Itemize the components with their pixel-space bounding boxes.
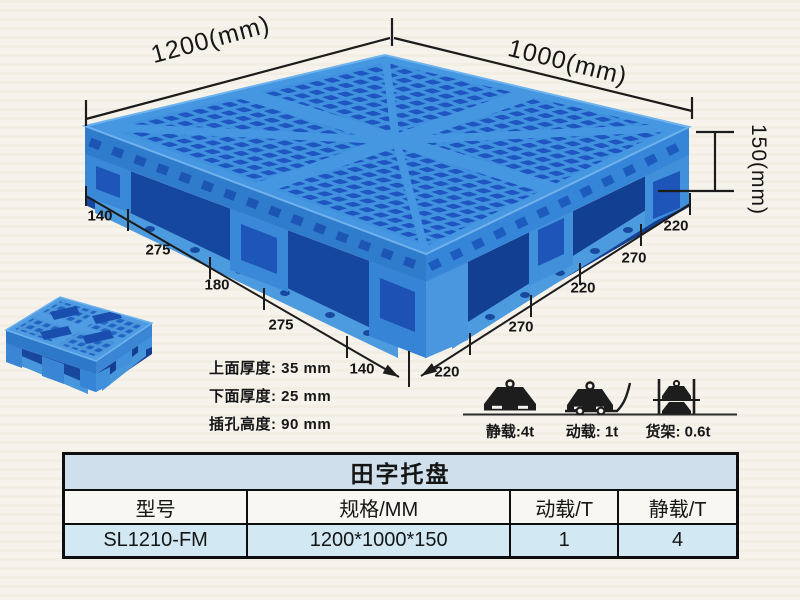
spec-table: 田字托盘 型号 规格/MM 动载/T 静载/T SL1210-FM 1200*1… [62, 452, 739, 559]
main-pallet-illustration [40, 20, 740, 358]
header-static-load: 静载/T [619, 491, 736, 523]
left-dim-140b: 140 [349, 361, 374, 378]
table-data-row: SL1210-FM 1200*1000*150 1 4 [65, 525, 736, 556]
spec-bottom-thickness: 下面厚度: 25 mm [209, 385, 331, 406]
right-dim-270a: 270 [621, 250, 646, 267]
dynamic-load-label: 动载: 1t [566, 421, 619, 442]
rack-load-icon [653, 379, 700, 414]
right-dim-270b: 270 [508, 319, 533, 336]
cell-model: SL1210-FM [65, 525, 248, 556]
left-dim-140a: 140 [87, 208, 112, 225]
header-size: 规格/MM [248, 491, 511, 523]
table-header-row: 型号 规格/MM 动载/T 静载/T [65, 491, 736, 525]
right-dim-220b: 220 [570, 280, 595, 297]
left-dim-180: 180 [204, 277, 229, 294]
spec-top-thickness: 上面厚度: 35 mm [209, 357, 331, 378]
load-capacity-icons [463, 379, 737, 415]
right-dim-220c: 220 [434, 364, 459, 381]
dynamic-load-icon [565, 383, 630, 415]
table-title: 田字托盘 [65, 455, 736, 491]
left-dim-275b: 275 [268, 317, 293, 334]
cell-dynamic-load: 1 [511, 525, 619, 556]
spec-fork-height: 插孔高度: 90 mm [209, 413, 331, 434]
right-dim-220a: 220 [663, 218, 688, 235]
left-dim-arrowhead [383, 365, 402, 382]
product-sheet: 1200(mm) 1000(mm) 150(mm) 140 275 180 27… [0, 0, 800, 600]
height-dimension-label: 150(mm) [746, 124, 770, 215]
header-dynamic-load: 动载/T [511, 491, 619, 523]
rack-load-label: 货架: 0.6t [645, 421, 710, 442]
static-load-icon [484, 381, 536, 411]
static-load-label: 静载:4t [486, 421, 534, 442]
small-pallet-illustration [0, 290, 160, 394]
cell-size: 1200*1000*150 [248, 525, 511, 556]
cell-static-load: 4 [619, 525, 736, 556]
header-model: 型号 [65, 491, 248, 523]
left-dim-275a: 275 [145, 242, 170, 259]
